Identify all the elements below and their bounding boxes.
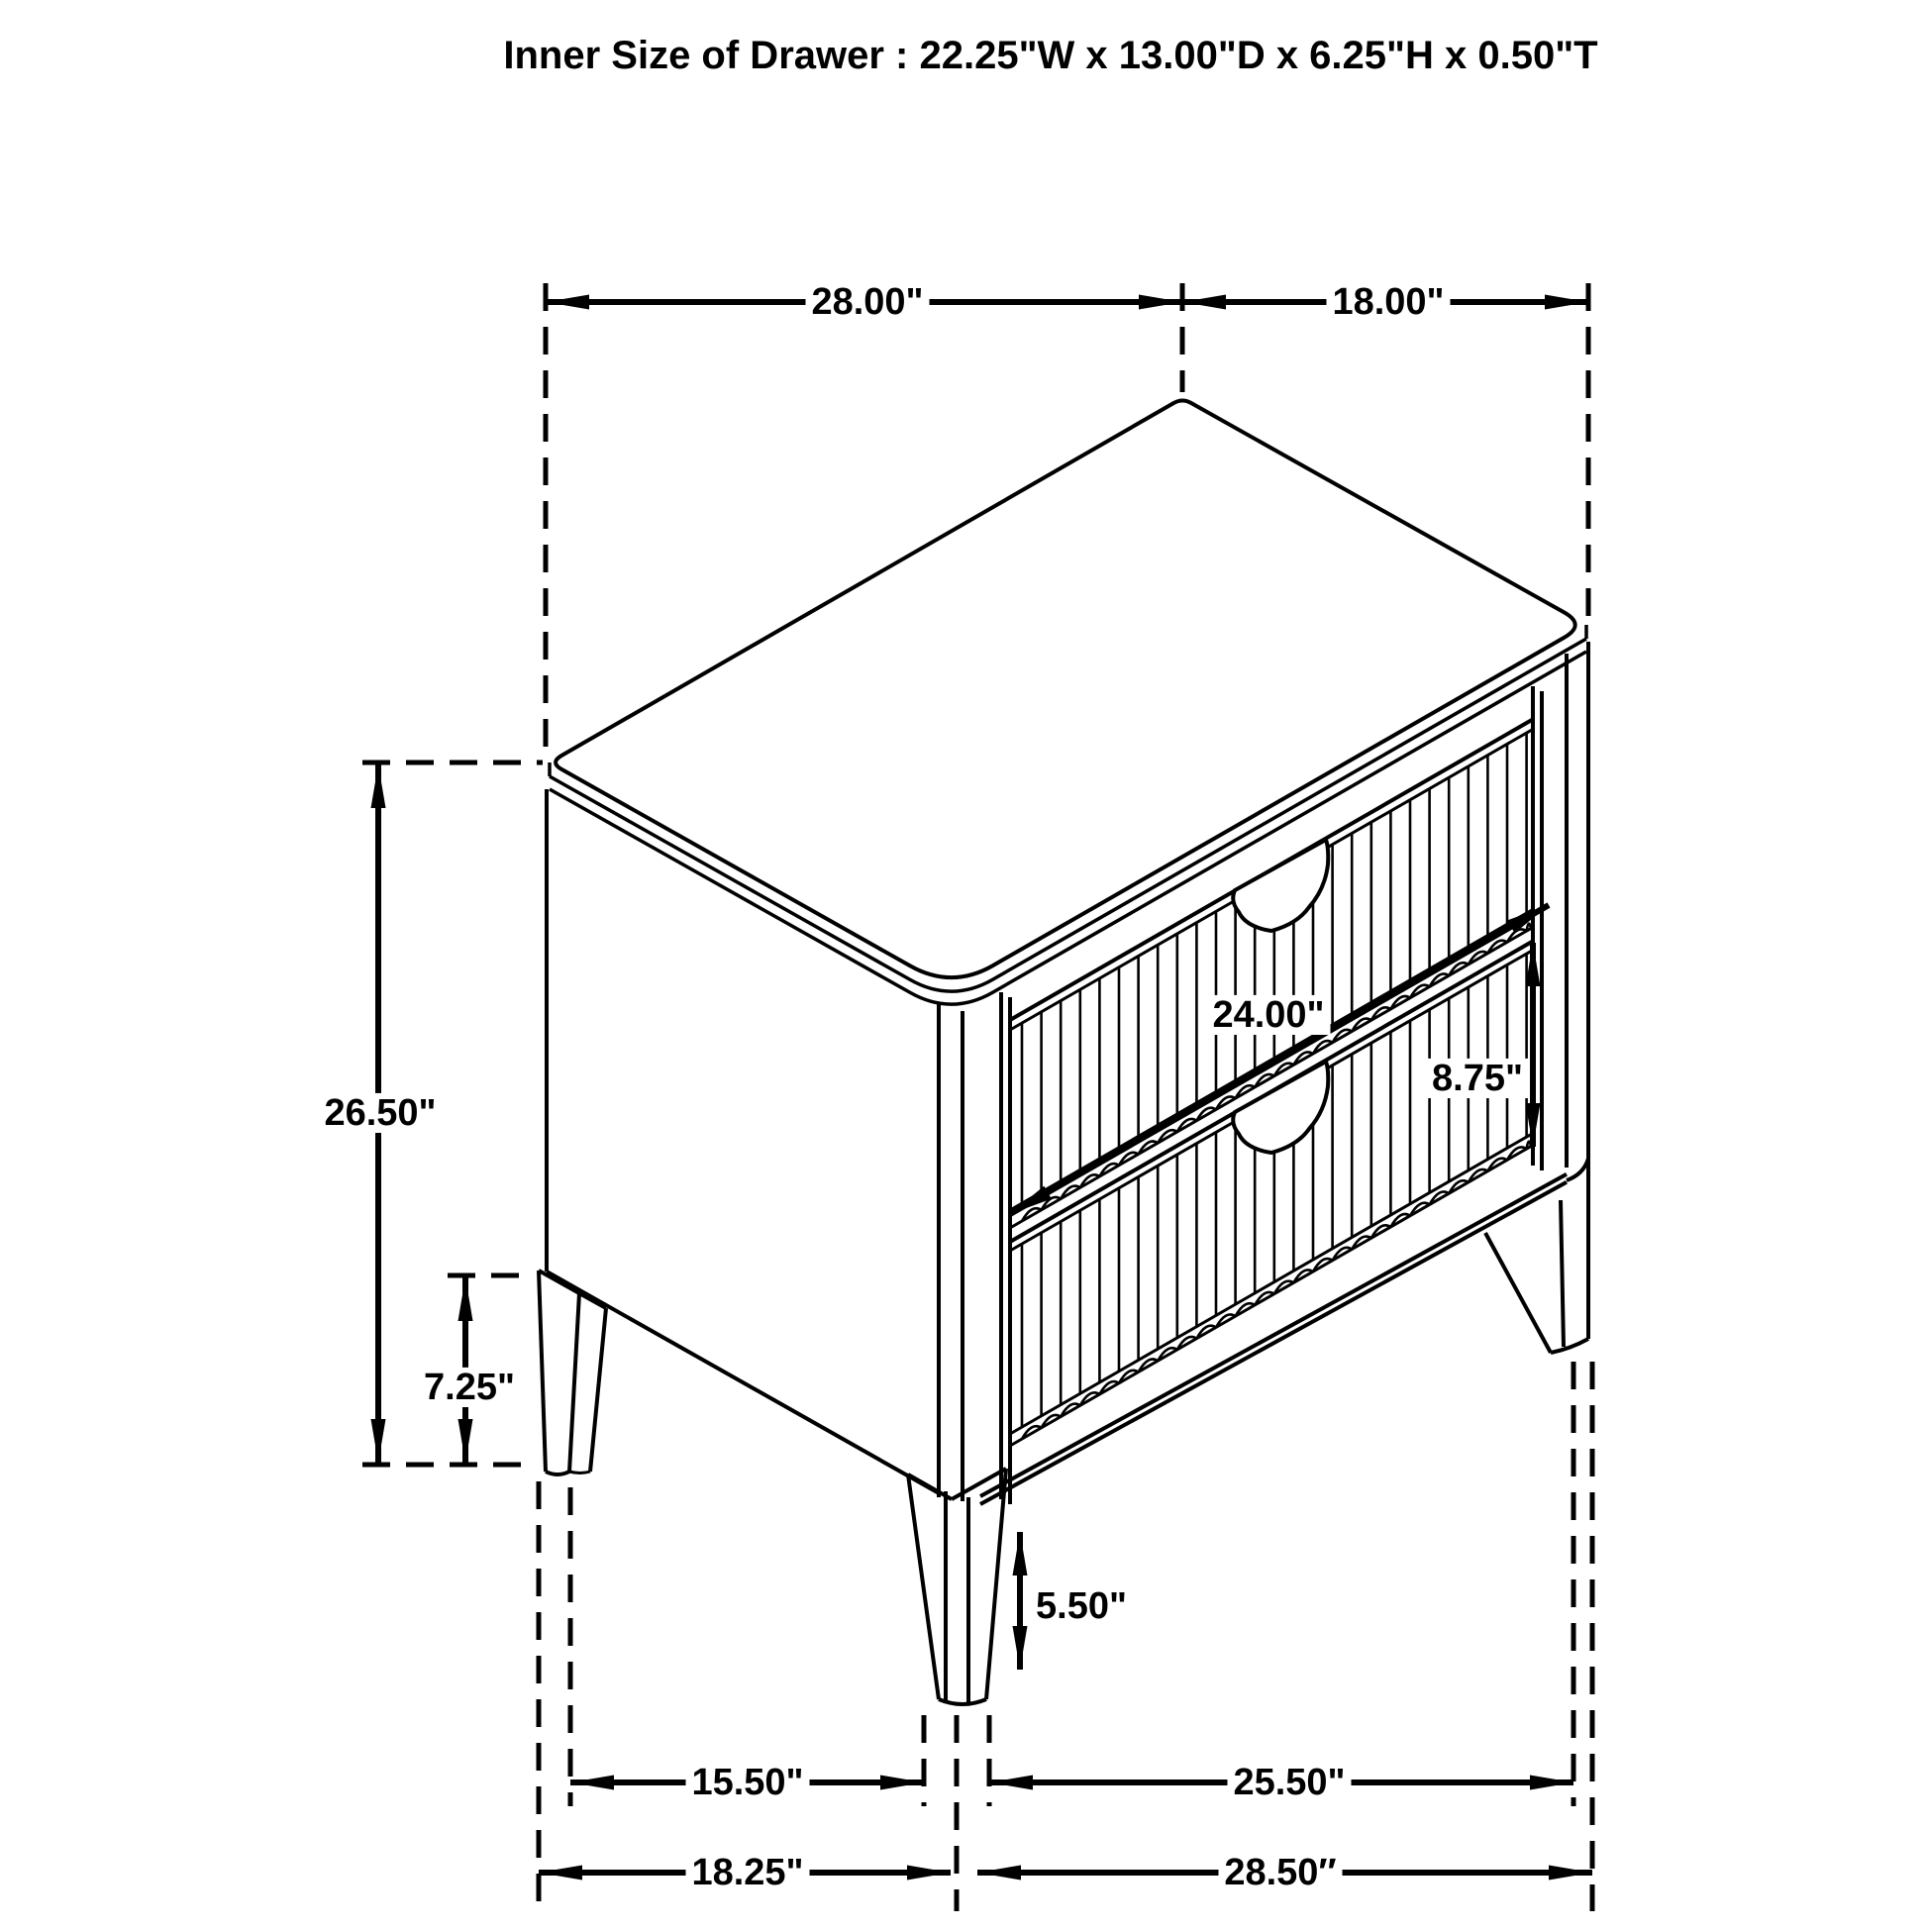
svg-text:28.00": 28.00" bbox=[811, 281, 923, 323]
svg-text:24.00": 24.00" bbox=[1212, 994, 1324, 1036]
svg-text:7.25": 7.25" bbox=[424, 1367, 515, 1408]
svg-text:18.25": 18.25" bbox=[691, 1852, 803, 1893]
svg-text:5.50": 5.50" bbox=[1036, 1585, 1127, 1627]
svg-text:18.00": 18.00" bbox=[1332, 281, 1444, 323]
svg-text:Inner Size of Drawer : 22.25"W: Inner Size of Drawer : 22.25"W x 13.00"D… bbox=[503, 34, 1597, 77]
svg-text:25.50": 25.50" bbox=[1233, 1762, 1345, 1803]
svg-text:26.50": 26.50" bbox=[324, 1092, 436, 1134]
svg-text:28.50″: 28.50″ bbox=[1224, 1852, 1336, 1893]
svg-text:8.75": 8.75" bbox=[1432, 1058, 1523, 1099]
svg-text:15.50": 15.50" bbox=[691, 1762, 803, 1803]
